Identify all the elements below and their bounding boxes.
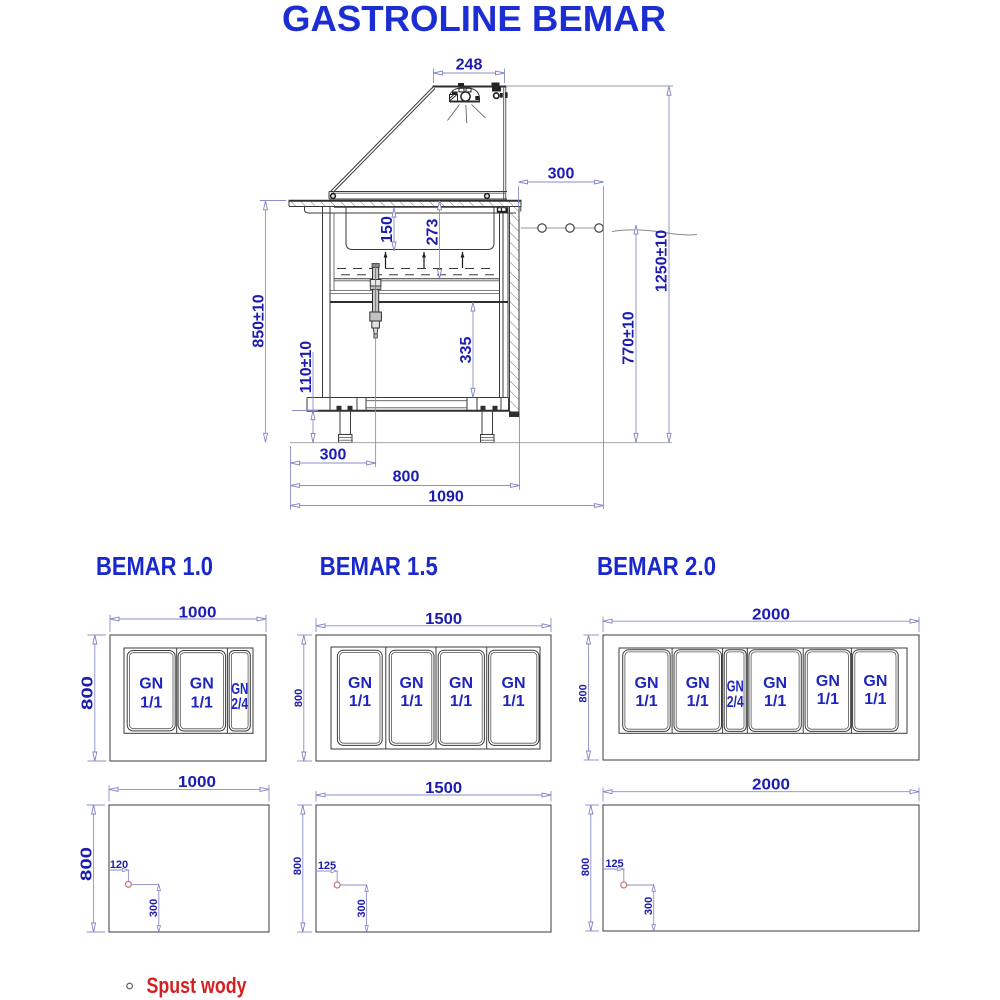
svg-text:2/4: 2/4: [231, 696, 248, 713]
svg-text:800: 800: [393, 469, 420, 486]
svg-text:800: 800: [580, 858, 592, 876]
svg-text:1250±10: 1250±10: [654, 230, 671, 292]
svg-text:GASTROLINE BEMAR: GASTROLINE BEMAR: [282, 0, 666, 39]
svg-text:Spust wody: Spust wody: [147, 973, 248, 998]
svg-text:1/1: 1/1: [764, 693, 786, 710]
svg-text:1/1: 1/1: [349, 693, 371, 710]
svg-text:BEMAR 1.0: BEMAR 1.0: [96, 551, 213, 581]
svg-text:850±10: 850±10: [251, 294, 268, 347]
svg-text:300: 300: [548, 166, 575, 183]
svg-text:300: 300: [643, 897, 655, 915]
svg-text:1000: 1000: [179, 604, 217, 621]
svg-text:1090: 1090: [428, 489, 464, 506]
svg-text:300: 300: [356, 899, 368, 917]
svg-text:800: 800: [293, 689, 305, 707]
svg-text:770±10: 770±10: [621, 311, 638, 364]
svg-text:GN: GN: [686, 675, 710, 692]
svg-text:1/1: 1/1: [864, 691, 886, 708]
svg-text:1/1: 1/1: [502, 693, 524, 710]
svg-text:125: 125: [605, 858, 623, 870]
svg-text:GN: GN: [763, 675, 787, 692]
svg-text:300: 300: [148, 899, 160, 917]
svg-text:248: 248: [456, 57, 483, 74]
svg-text:GN: GN: [348, 675, 372, 692]
svg-text:2/4: 2/4: [727, 694, 744, 711]
svg-text:BEMAR 2.0: BEMAR 2.0: [597, 551, 716, 581]
svg-text:GN: GN: [816, 673, 840, 690]
svg-text:GN: GN: [502, 675, 526, 692]
svg-text:GN: GN: [635, 675, 659, 692]
svg-text:GN: GN: [449, 675, 473, 692]
svg-text:GN: GN: [400, 675, 424, 692]
svg-text:125: 125: [318, 860, 336, 872]
svg-text:GN: GN: [727, 679, 744, 696]
svg-text:273: 273: [425, 219, 442, 246]
svg-text:1/1: 1/1: [635, 693, 657, 710]
svg-text:1/1: 1/1: [140, 695, 162, 712]
svg-text:1/1: 1/1: [191, 695, 213, 712]
svg-text:BEMAR 1.5: BEMAR 1.5: [320, 551, 438, 581]
svg-text:120: 120: [110, 859, 128, 871]
svg-text:800: 800: [80, 676, 97, 710]
svg-text:110±10: 110±10: [298, 341, 315, 393]
svg-text:300: 300: [320, 447, 347, 464]
svg-text:GN: GN: [863, 673, 887, 690]
svg-text:1/1: 1/1: [817, 691, 839, 708]
svg-text:1/1: 1/1: [450, 693, 472, 710]
svg-text:2000: 2000: [752, 607, 790, 624]
svg-text:800: 800: [292, 857, 304, 875]
svg-text:800: 800: [79, 847, 96, 881]
svg-text:1000: 1000: [178, 774, 216, 791]
svg-text:1/1: 1/1: [400, 693, 422, 710]
svg-text:2000: 2000: [752, 776, 790, 793]
svg-text:1500: 1500: [425, 611, 462, 628]
svg-text:150: 150: [379, 216, 396, 243]
svg-text:1500: 1500: [425, 780, 462, 797]
svg-text:800: 800: [578, 684, 590, 702]
svg-text:335: 335: [458, 337, 475, 364]
svg-text:1/1: 1/1: [687, 693, 709, 710]
svg-text:GN: GN: [139, 675, 163, 692]
svg-text:GN: GN: [190, 675, 214, 692]
